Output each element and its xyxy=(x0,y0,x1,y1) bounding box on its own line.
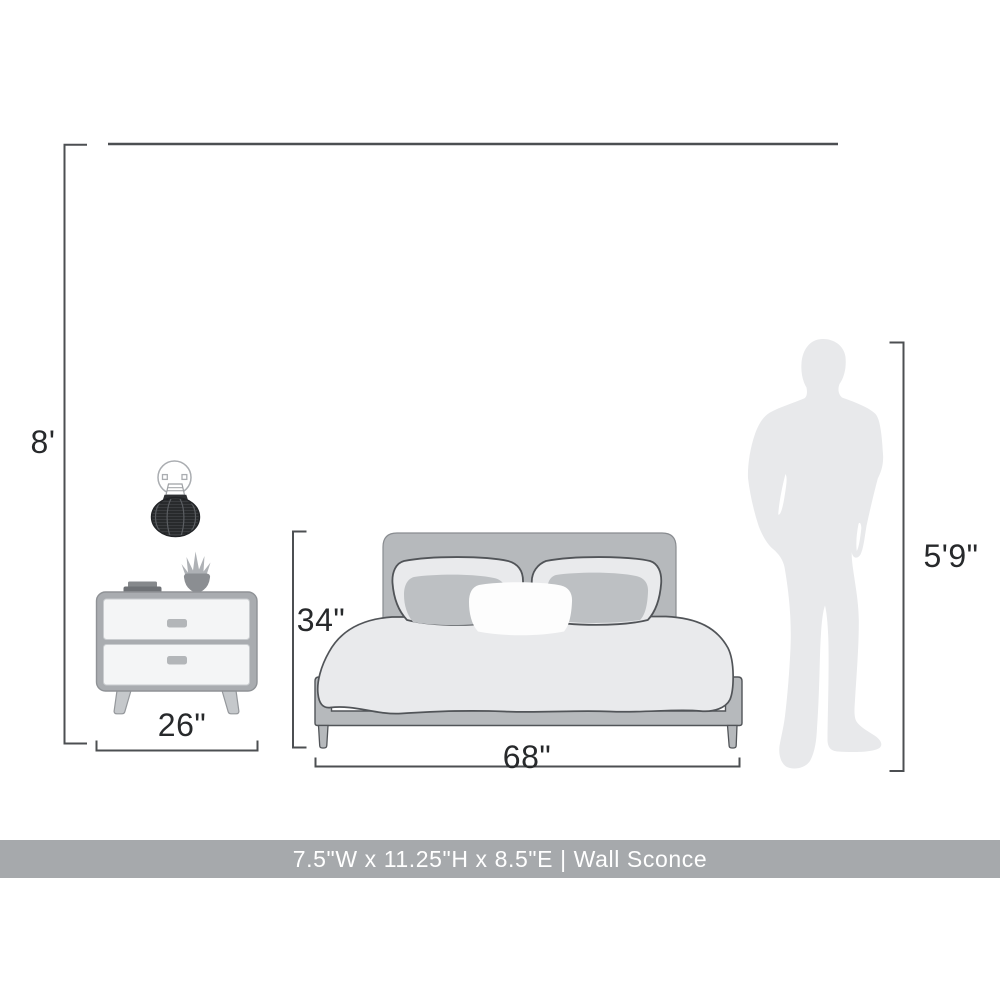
wall-sconce-illustration xyxy=(151,461,201,537)
person-silhouette xyxy=(748,339,883,769)
label-wall-height: 8' xyxy=(8,422,78,462)
bed-leg-left xyxy=(319,726,329,749)
label-bed-width: 68" xyxy=(477,737,577,777)
nightstand-leg-left xyxy=(114,691,131,714)
plant-leaves xyxy=(182,552,211,578)
label-bed-height: 34" xyxy=(271,600,371,640)
drawer-handle-bottom xyxy=(167,656,187,665)
nightstand-illustration xyxy=(97,552,258,714)
bed-illustration xyxy=(315,533,742,748)
product-dimensions-banner: 7.5"W x 11.25"H x 8.5"E | Wall Sconce xyxy=(0,840,1000,878)
dimension-diagram: 8' 26" 34" 68" 5'9" 7.5"W x 11.25"H x 8.… xyxy=(0,0,1000,1000)
drawer-handle-top xyxy=(167,619,187,628)
label-person-height: 5'9" xyxy=(900,536,1000,576)
plant-pot xyxy=(184,574,210,593)
bed-leg-right xyxy=(728,726,738,749)
bulb-contact-right xyxy=(182,475,187,480)
nightstand-drawer-bottom xyxy=(104,645,250,686)
sconce-socket xyxy=(166,484,185,495)
bed-pillow-white xyxy=(469,582,572,635)
label-nightstand-width: 26" xyxy=(132,705,232,745)
bulb-contact-left xyxy=(163,475,168,480)
